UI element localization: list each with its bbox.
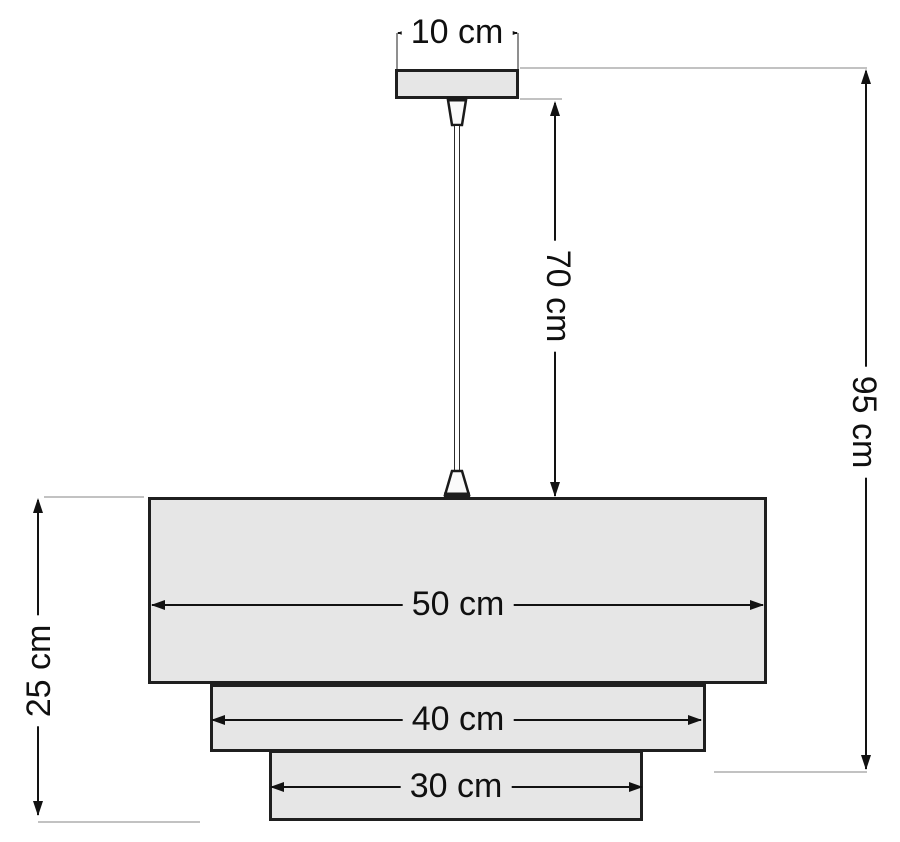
arrowhead-left-icon	[211, 715, 225, 725]
ceiling-canopy	[395, 69, 519, 99]
lamp-dimension-diagram: 10 cm 70 cm 95 cm 25 cm 50 cm 40 cm	[0, 0, 900, 842]
dimension-label-bottom-tier-width: 30 cm	[401, 769, 512, 805]
extension-line-total-height-bottom	[714, 771, 867, 773]
arrowhead-up-icon	[550, 101, 560, 116]
arrowhead-up-icon	[33, 498, 43, 513]
dimension-label-cord-length: 70 cm	[539, 241, 575, 352]
cord-grip-top	[444, 97, 470, 128]
arrowhead-left-icon	[151, 600, 165, 610]
dimension-label-middle-tier-width: 40 cm	[403, 702, 514, 738]
extension-line-shade-height-bottom	[38, 821, 200, 823]
cord-grip-bottom	[441, 468, 473, 499]
dimension-label-total-height: 95 cm	[845, 367, 881, 478]
arrowhead-right-icon	[750, 600, 764, 610]
arrowhead-right-icon	[688, 715, 702, 725]
dimension-label-canopy-width: 10 cm	[402, 15, 513, 51]
extension-line-shade-height-top	[44, 496, 144, 498]
arrowhead-down-icon	[861, 755, 871, 770]
extension-line-total-height-top	[520, 67, 867, 69]
dimension-label-shade-height: 25 cm	[22, 616, 58, 727]
extension-line-cord-top	[520, 98, 562, 100]
extension-line-canopy-left	[396, 33, 398, 69]
dimension-label-top-tier-width: 50 cm	[403, 587, 514, 623]
arrowhead-down-icon	[550, 482, 560, 497]
suspension-cable	[454, 126, 460, 472]
extension-line-canopy-right	[517, 33, 519, 69]
arrowhead-left-icon	[270, 782, 284, 792]
arrowhead-down-icon	[33, 801, 43, 816]
arrowhead-up-icon	[861, 69, 871, 84]
arrowhead-right-icon	[629, 782, 643, 792]
